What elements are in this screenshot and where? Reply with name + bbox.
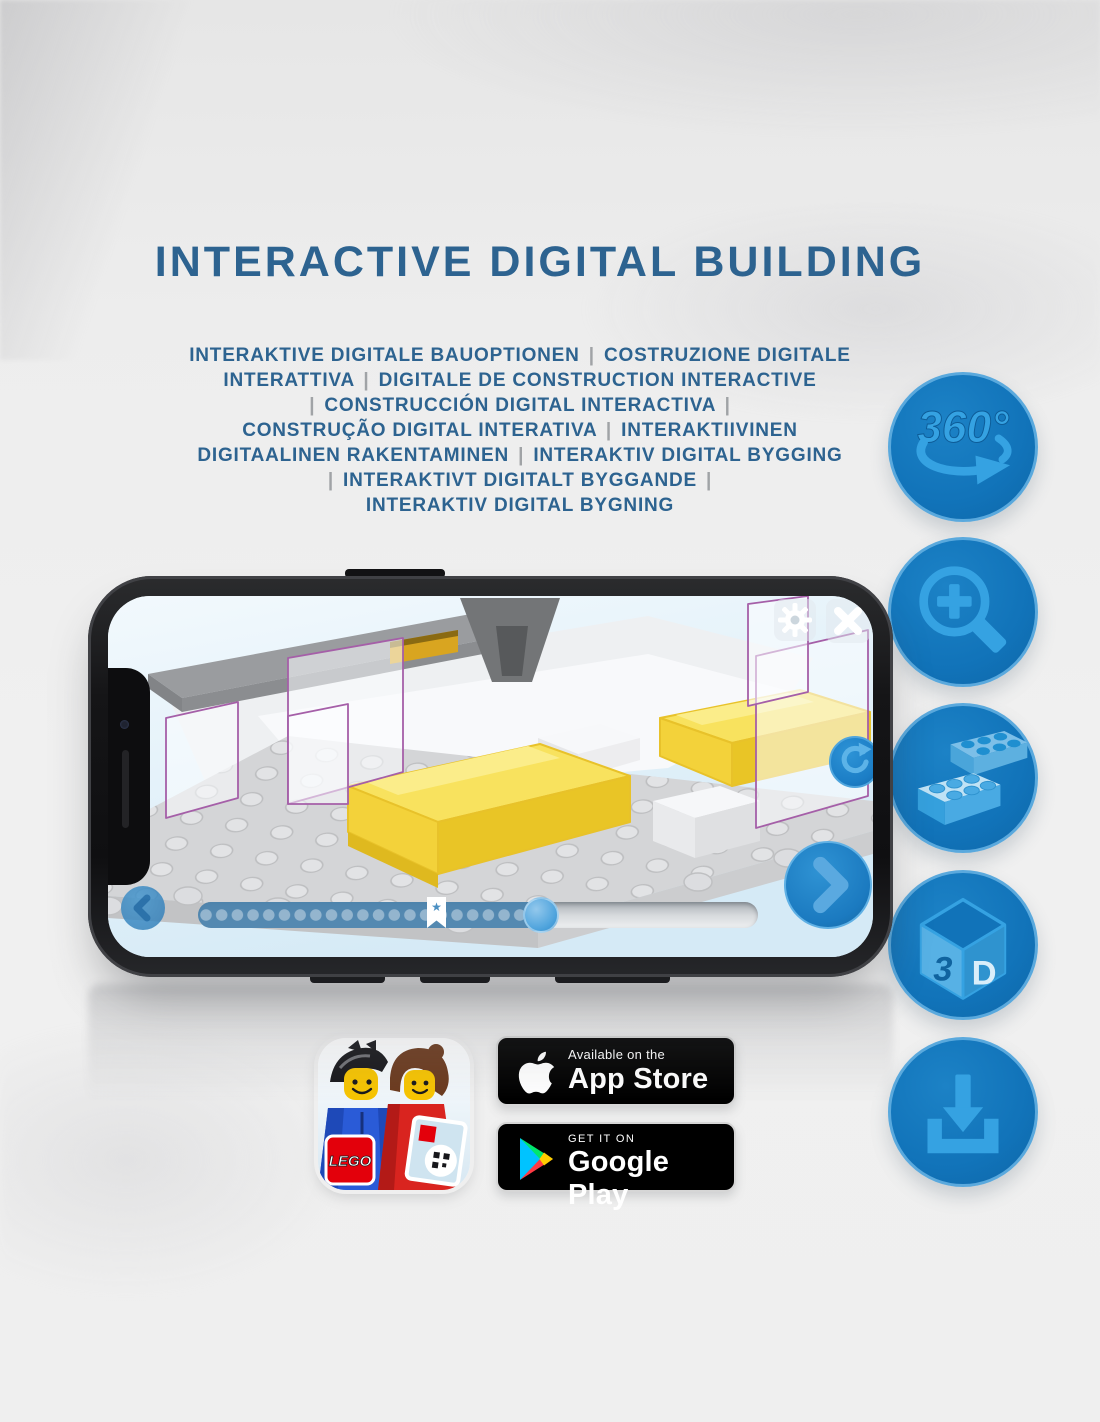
star-icon: ★ — [431, 900, 442, 914]
phone-screen: ★ — [108, 596, 873, 957]
front-camera — [120, 720, 129, 729]
phone-reflection — [88, 984, 893, 1134]
subtitle-line: | INTERAKTIVT DIGITALT BYGGANDE | — [150, 468, 890, 493]
marble-background-streak — [0, 0, 1100, 360]
poster: INTERACTIVE DIGITAL BUILDING INTERAKTIVE… — [0, 0, 1100, 1422]
lego-logo-text: LEGO — [329, 1153, 372, 1170]
previous-step-button[interactable] — [121, 886, 165, 930]
phone-notch — [108, 668, 150, 885]
build-progress-bar[interactable]: ★ — [198, 902, 758, 928]
360-rotation-icon: 360° — [888, 372, 1038, 522]
chevron-left-icon — [121, 886, 165, 930]
rotate-icon — [831, 738, 873, 786]
phone-mockup: ★ — [88, 576, 893, 977]
subtitle-line: | CONSTRUCCIÓN DIGITAL INTERACTIVA | — [150, 393, 890, 418]
subtitle-line: DIGITAALINEN RAKENTAMINEN | INTERAKTIV D… — [150, 443, 890, 468]
cube-letter-d: D — [972, 954, 997, 992]
360-label: 360° — [917, 403, 1009, 452]
subtitle-line: INTERATTIVA | DIGITALE DE CONSTRUCTION I… — [150, 368, 890, 393]
3d-cube-icon: 3 D — [888, 870, 1038, 1020]
rotate-view-button[interactable] — [829, 736, 873, 788]
settings-button[interactable] — [774, 599, 816, 641]
earpiece-speaker — [122, 750, 129, 828]
gear-icon — [774, 599, 816, 641]
zoom-in-icon — [888, 537, 1038, 687]
close-icon — [826, 599, 870, 643]
cube-letter-3: 3 — [933, 951, 952, 989]
next-step-button[interactable] — [784, 841, 872, 929]
chevron-right-icon — [786, 843, 870, 927]
brick-icon — [888, 703, 1038, 853]
build-progress-fill — [198, 902, 558, 928]
download-icon — [888, 1037, 1038, 1187]
close-button[interactable] — [826, 599, 870, 643]
progress-slider-handle[interactable] — [523, 897, 559, 933]
google-play-icon — [514, 1137, 558, 1181]
subtitle-line: INTERAKTIV DIGITAL BYGNING — [150, 493, 890, 518]
page-title: INTERACTIVE DIGITAL BUILDING — [0, 238, 1080, 287]
subtitle-line: CONSTRUÇÃO DIGITAL INTERATIVA | INTERAKT… — [150, 418, 890, 443]
google-play-name: Google Play — [568, 1146, 734, 1212]
google-play-tagline: GET IT ON — [568, 1133, 734, 1145]
subtitle-line: INTERAKTIVE DIGITALE BAUOPTIONEN | COSTR… — [150, 343, 890, 368]
subtitle: INTERAKTIVE DIGITALE BAUOPTIONEN | COSTR… — [150, 343, 890, 518]
